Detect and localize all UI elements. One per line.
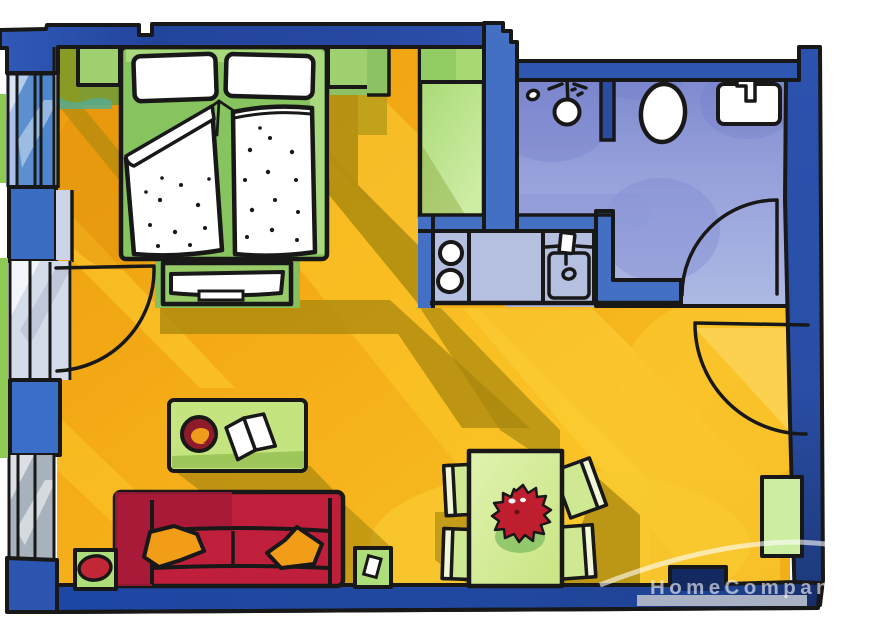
svg-text:HomeCompan: HomeCompan	[650, 576, 833, 599]
